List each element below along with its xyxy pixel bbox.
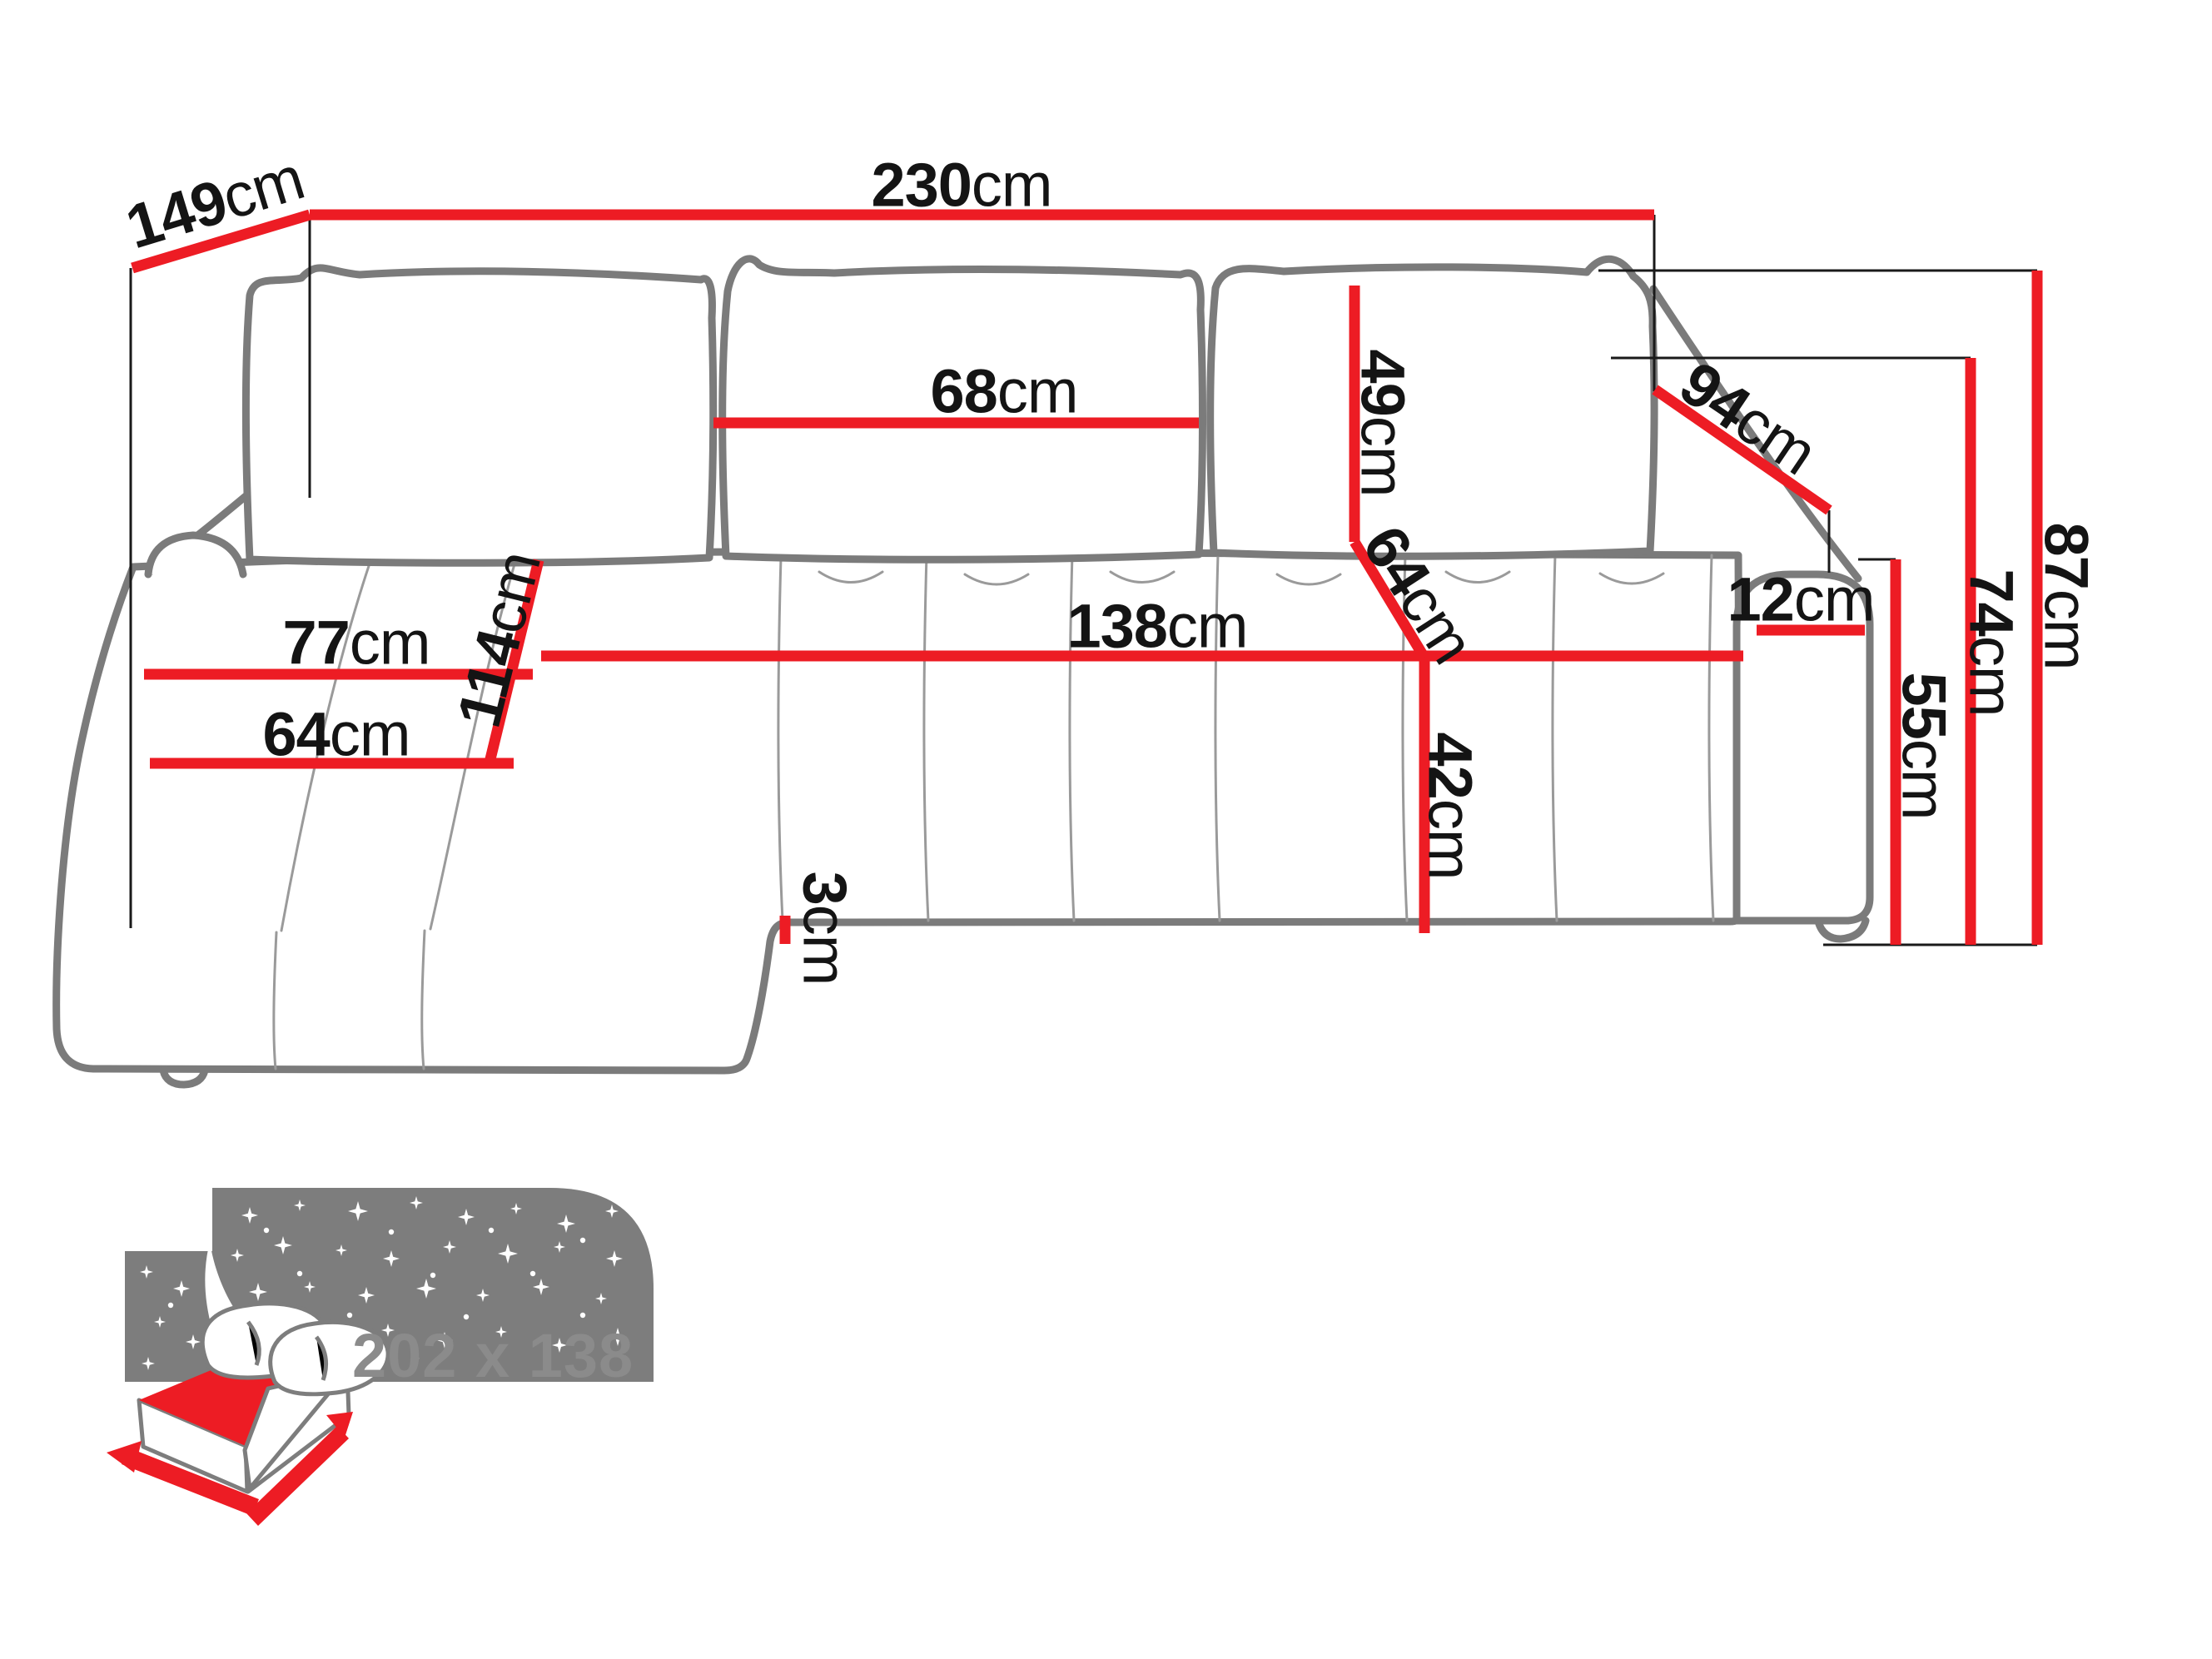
back-cushion-left [246, 268, 713, 563]
star-dot-icon [168, 1303, 173, 1308]
dimension-label-49: 49cm [1348, 350, 1419, 497]
dimension-label-230: 230cm [871, 150, 1051, 221]
dimension-label-138: 138cm [1066, 591, 1247, 662]
sleeping-area-size-label: 202 x 138 [352, 1320, 634, 1391]
star-dot-icon [297, 1271, 302, 1276]
star-dot-icon [389, 1229, 394, 1234]
back-cushion-right [1210, 259, 1654, 556]
diagram-canvas [0, 0, 2212, 1659]
star-dot-icon [264, 1228, 269, 1233]
star-dot-icon [580, 1238, 585, 1243]
dimension-label-12: 12cm [1727, 564, 1875, 635]
sofa-dimensions-diagram: 149cm 230cm 68cm 49cm 64cm 94cm 12cm 87c… [0, 0, 2212, 1659]
dimension-label-68: 68cm [931, 356, 1078, 427]
dimension-label-77: 77cm [283, 608, 430, 678]
star-dot-icon [430, 1273, 435, 1278]
star-dot-icon [347, 1313, 352, 1318]
star-dot-icon [464, 1314, 469, 1319]
dimension-label-64-chaise: 64cm [263, 699, 410, 770]
chaise-bolster [148, 535, 243, 574]
star-dot-icon [580, 1313, 585, 1318]
dimension-label-87: 87cm [2031, 523, 2102, 670]
star-dot-icon [530, 1271, 535, 1276]
dimension-label-42: 42cm [1415, 733, 1486, 880]
dimension-label-3: 3cm [790, 872, 861, 986]
dimension-label-74: 74cm [1956, 569, 2027, 717]
dimension-label-55: 55cm [1889, 673, 1960, 820]
star-dot-icon [489, 1228, 494, 1233]
